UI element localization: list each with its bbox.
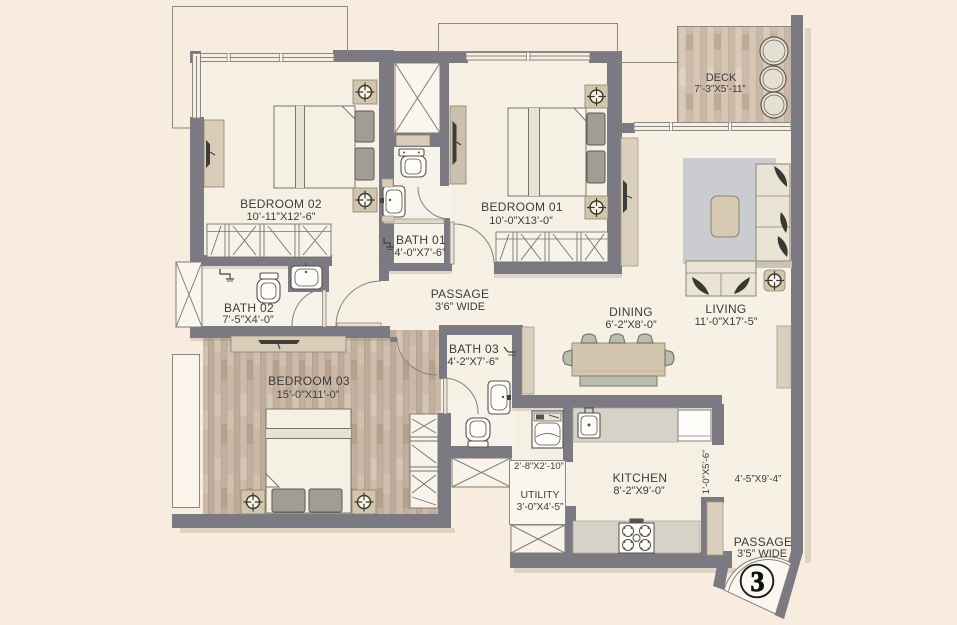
svg-text:DINING: DINING bbox=[609, 305, 653, 319]
svg-text:LIVING: LIVING bbox=[705, 302, 746, 316]
svg-text:3’-0”X4’-5”: 3’-0”X4’-5” bbox=[517, 502, 564, 513]
svg-text:UTILITY: UTILITY bbox=[520, 489, 559, 501]
svg-text:2’-8”X2’-10”: 2’-8”X2’-10” bbox=[514, 461, 564, 472]
svg-text:4’-2”X7’-6”: 4’-2”X7’-6” bbox=[447, 356, 499, 368]
svg-text:BATH 03: BATH 03 bbox=[449, 342, 499, 356]
svg-text:PASSAGE: PASSAGE bbox=[431, 287, 490, 301]
svg-text:BEDROOM 02: BEDROOM 02 bbox=[240, 197, 322, 211]
svg-text:4’-5”X9’-4”: 4’-5”X9’-4” bbox=[735, 474, 782, 485]
svg-text:15’-0”X11’-0”: 15’-0”X11’-0” bbox=[277, 389, 340, 401]
svg-text:DECK: DECK bbox=[706, 72, 737, 84]
svg-text:11’-0”X17’-5”: 11’-0”X17’-5” bbox=[695, 316, 758, 328]
svg-text:4’-0”X7’-6”: 4’-0”X7’-6” bbox=[394, 247, 446, 259]
svg-text:3’5” WIDE: 3’5” WIDE bbox=[737, 548, 787, 560]
svg-text:PASSAGE: PASSAGE bbox=[734, 535, 793, 549]
svg-text:KITCHEN: KITCHEN bbox=[613, 471, 668, 485]
svg-text:1’-0”X5’-6”: 1’-0”X5’-6” bbox=[701, 450, 712, 494]
svg-text:10’-11”X12’-6”: 10’-11”X12’-6” bbox=[247, 211, 316, 223]
svg-text:BEDROOM 01: BEDROOM 01 bbox=[481, 200, 563, 214]
svg-text:7’-5”X4’-0”: 7’-5”X4’-0” bbox=[222, 314, 274, 326]
svg-text:BEDROOM 03: BEDROOM 03 bbox=[268, 374, 350, 388]
svg-text:6’-2”X8’-0”: 6’-2”X8’-0” bbox=[605, 319, 657, 331]
svg-text:7’-3”X5’-11”: 7’-3”X5’-11” bbox=[694, 84, 746, 95]
svg-text:8’-2”X9’-0”: 8’-2”X9’-0” bbox=[613, 485, 665, 497]
svg-text:10’-0”X13’-0”: 10’-0”X13’-0” bbox=[489, 215, 553, 227]
svg-text:BATH 02: BATH 02 bbox=[224, 301, 274, 315]
svg-text:3: 3 bbox=[751, 567, 765, 598]
svg-text:3’6” WIDE: 3’6” WIDE bbox=[435, 301, 485, 313]
svg-text:BATH 01: BATH 01 bbox=[396, 233, 446, 247]
